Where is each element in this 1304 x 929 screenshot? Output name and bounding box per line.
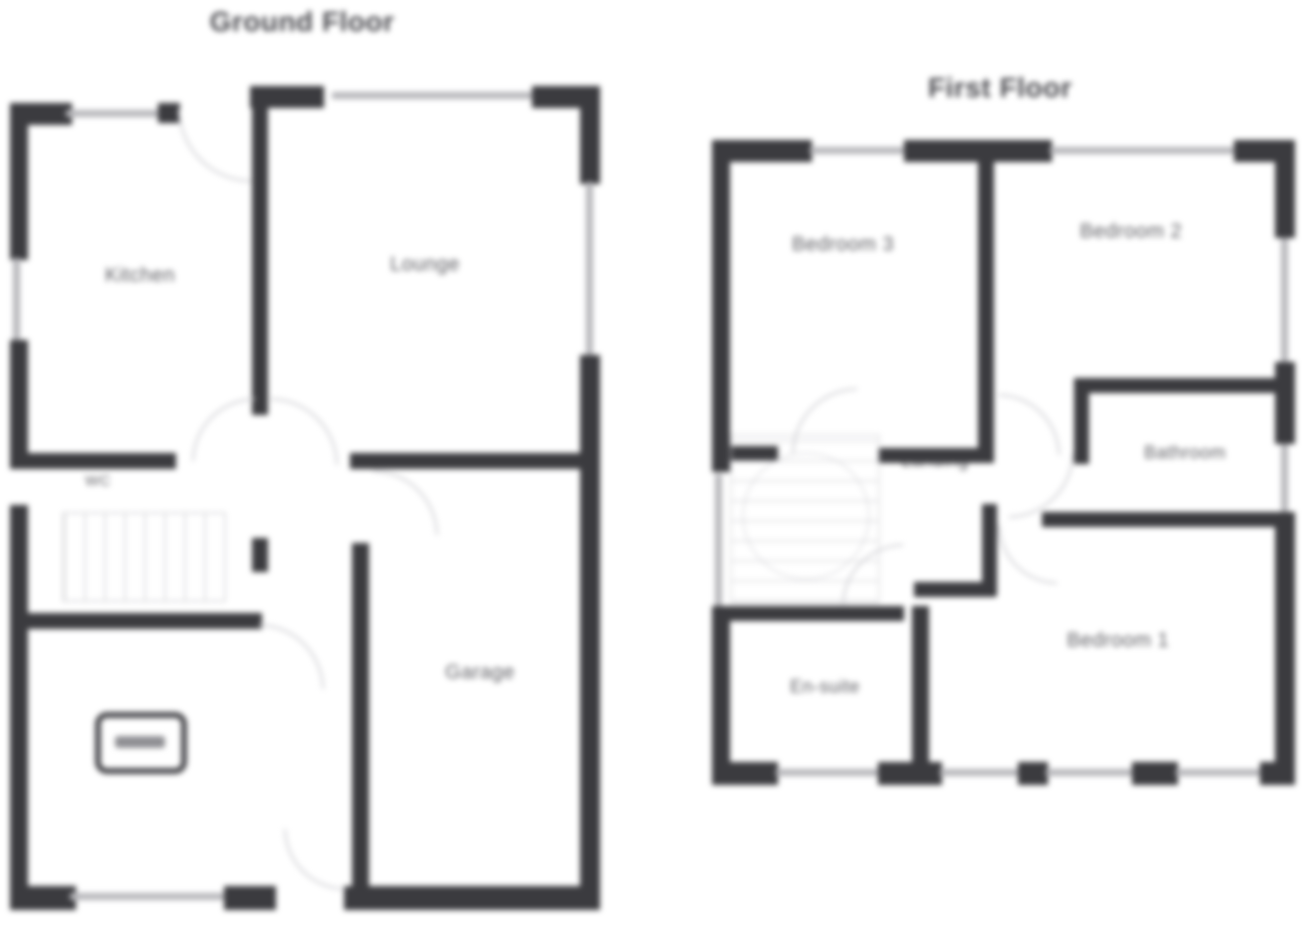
- first-floor-title: First Floor: [928, 72, 1072, 104]
- room-label-bedroom1: Bedroom 1: [1067, 630, 1169, 653]
- wall: [1275, 140, 1295, 238]
- wall: [712, 610, 730, 785]
- wall: [712, 762, 778, 785]
- window-line: [940, 769, 1020, 776]
- room-label-bedroom3: Bedroom 3: [792, 234, 894, 257]
- wall: [1074, 378, 1089, 464]
- wall: [712, 606, 904, 621]
- wall: [158, 103, 180, 123]
- window-line: [715, 474, 722, 610]
- wall: [252, 538, 268, 572]
- wall: [712, 140, 730, 472]
- staircase-ground: [62, 512, 226, 602]
- window-line: [1281, 444, 1288, 516]
- door-arc: [998, 394, 1060, 456]
- wall: [580, 86, 600, 184]
- room-label-bathroom: Bathroom: [1144, 443, 1226, 464]
- window-line: [776, 769, 880, 776]
- wall: [1074, 378, 1295, 393]
- room-label-bedroom2: Bedroom 2: [1080, 221, 1182, 244]
- wall: [10, 103, 28, 260]
- wall: [224, 886, 276, 910]
- wall: [252, 103, 268, 415]
- window-line: [586, 182, 593, 356]
- wall: [10, 340, 28, 462]
- window-line: [1046, 769, 1134, 776]
- door-arc: [372, 470, 438, 536]
- window-line: [1050, 147, 1236, 154]
- door-arc: [258, 624, 324, 690]
- staircase-curve: [742, 452, 870, 580]
- wall: [878, 448, 994, 463]
- wall: [1042, 512, 1295, 527]
- wall: [10, 620, 28, 910]
- door-arc: [178, 108, 252, 182]
- window-line: [13, 258, 20, 342]
- wall: [914, 582, 996, 597]
- room-label-wc: WC: [85, 473, 111, 490]
- door-arc: [192, 398, 256, 462]
- window-line: [810, 147, 906, 154]
- wall: [350, 453, 600, 469]
- wall: [1275, 516, 1295, 785]
- wall: [1018, 762, 1048, 785]
- floorplan-canvas: Ground Floor Kitchen Lounge WC Garage Fi…: [0, 0, 1304, 929]
- door-arc: [284, 828, 346, 890]
- wall: [878, 762, 942, 785]
- door-arc: [998, 524, 1058, 584]
- wall: [912, 606, 929, 785]
- wall: [1260, 762, 1295, 785]
- room-label-kitchen: Kitchen: [105, 265, 175, 288]
- window-line: [1176, 769, 1264, 776]
- stamp-box: [95, 712, 187, 774]
- wall: [344, 886, 600, 910]
- wall: [1275, 362, 1295, 444]
- wall: [10, 505, 28, 622]
- window-line: [70, 893, 226, 900]
- wall: [1132, 762, 1178, 785]
- wall: [352, 543, 369, 910]
- stamp-band: [115, 736, 165, 748]
- wall: [10, 613, 262, 629]
- room-label-garage: Garage: [445, 662, 515, 685]
- wall: [978, 140, 994, 462]
- door-arc: [270, 398, 338, 466]
- wall: [10, 453, 176, 469]
- door-arc: [1008, 452, 1074, 518]
- room-label-ensuite: En-suite: [790, 677, 860, 698]
- window-line: [332, 92, 534, 99]
- window-line: [1281, 238, 1288, 362]
- wall: [10, 886, 76, 910]
- wall: [580, 355, 600, 910]
- ground-floor-title: Ground Floor: [210, 6, 395, 38]
- window-line: [66, 110, 162, 117]
- room-label-lounge: Lounge: [390, 254, 460, 277]
